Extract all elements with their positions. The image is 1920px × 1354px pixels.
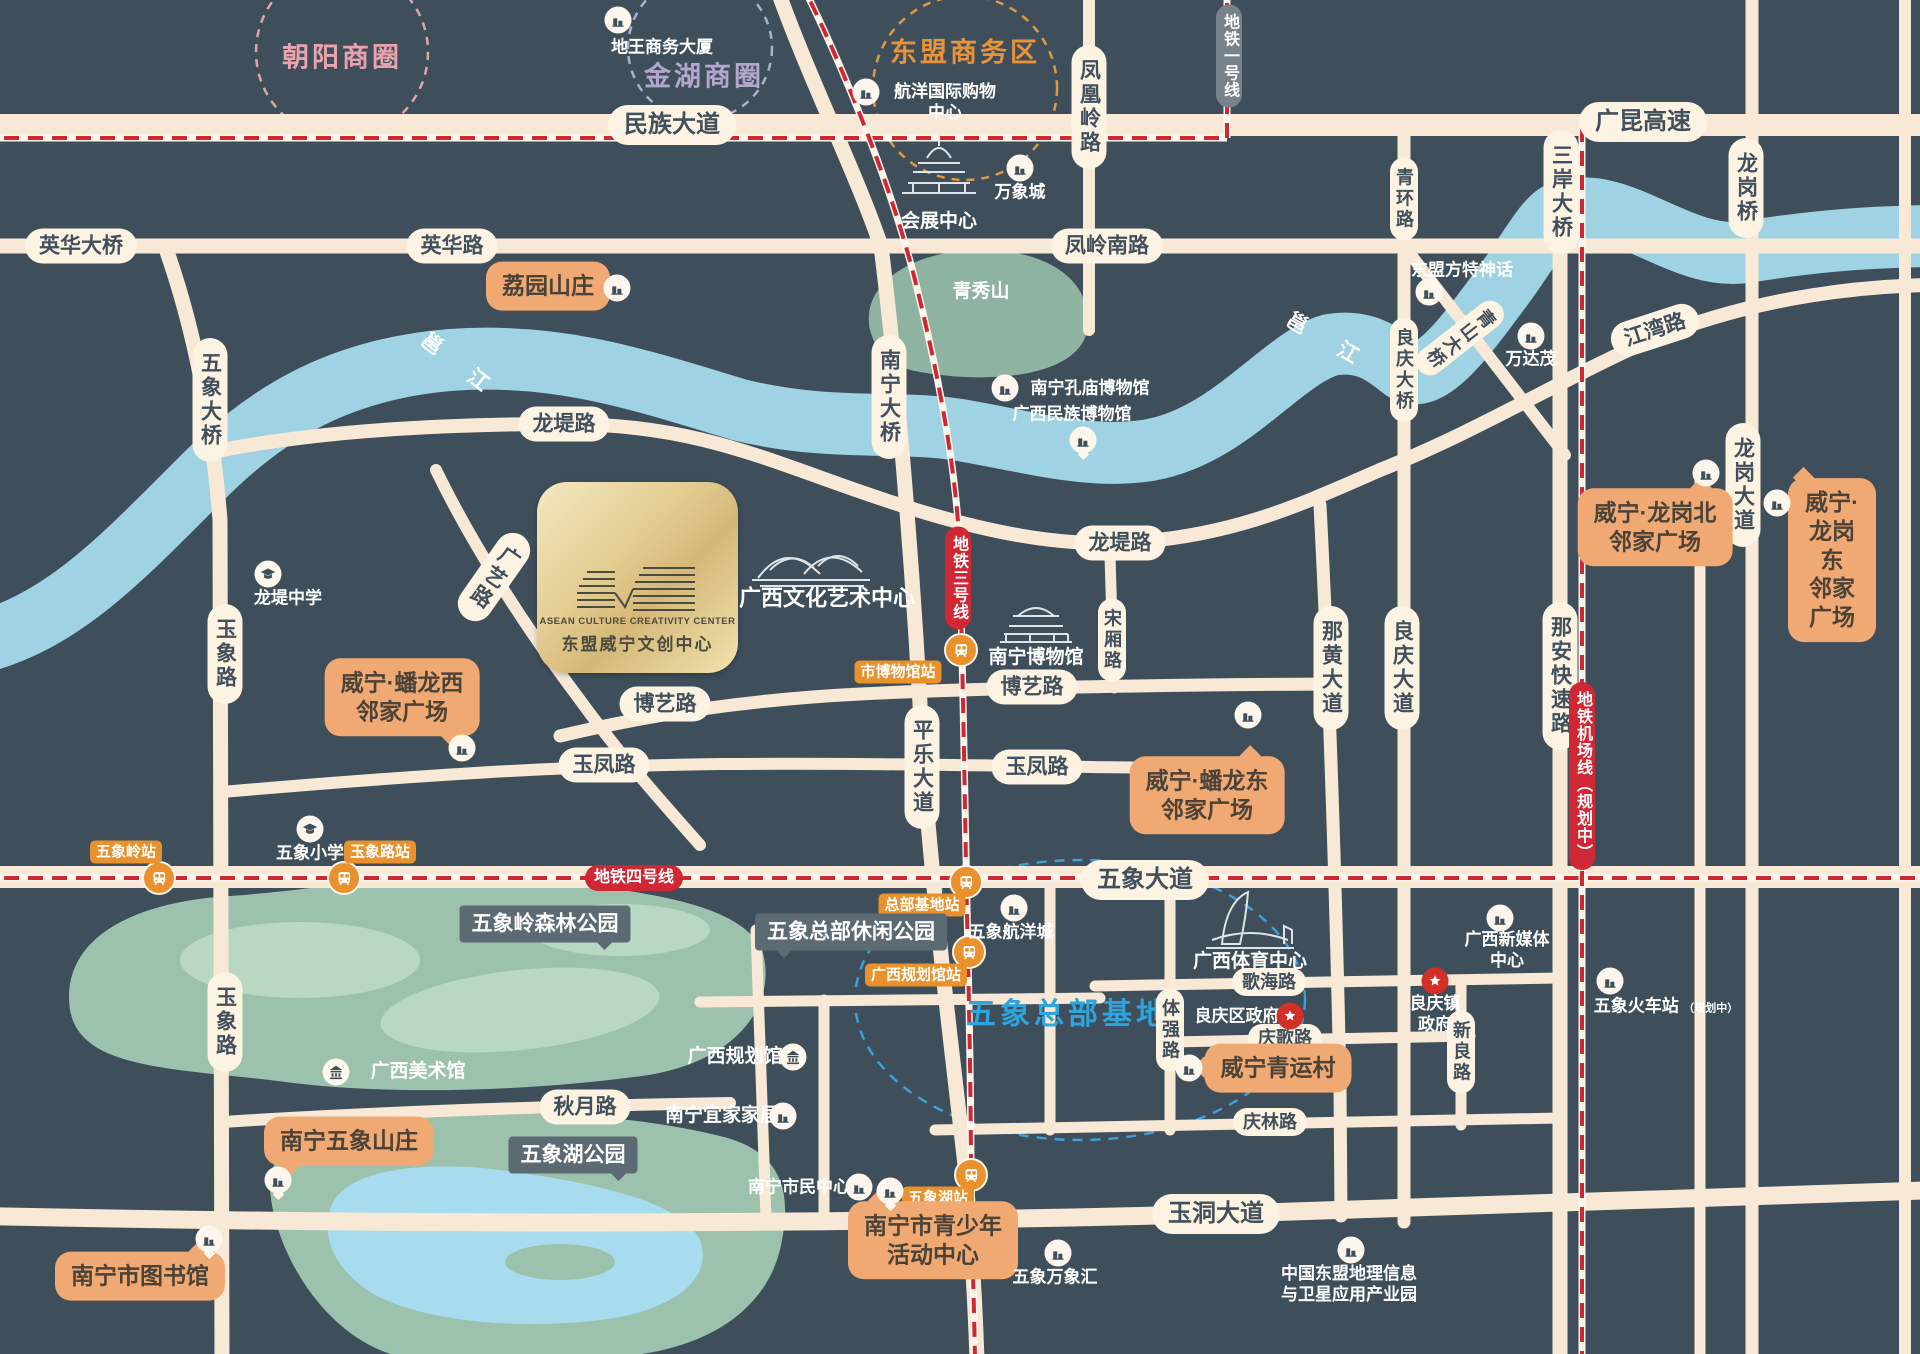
road-pingle-avenue: 平乐大道: [905, 705, 940, 829]
road-liangqing-avenue: 良庆大道: [1385, 606, 1420, 730]
project-card: ASEAN CULTURE CREATIVITY CENTER 东盟威宁文创中心: [537, 482, 738, 673]
poi-qingxiushan: 青秀山: [952, 280, 1009, 304]
qingyun-village-icon: [1176, 1055, 1203, 1082]
rail-station-note: （规划中）: [1683, 1002, 1738, 1014]
poi-wandamao: 万达茂: [1506, 348, 1557, 369]
poi-kongmiao: 南宁孔庙博物馆: [1031, 377, 1150, 398]
poi-wuxiang-school: 五象小学: [276, 842, 344, 863]
road-fengling-south: 凤岭南路: [1051, 229, 1163, 264]
road-yufeng-west: 玉凤路: [559, 748, 650, 783]
poi-fangte: 东盟方特神话: [1411, 259, 1513, 280]
station-planning-hall: 广西规划馆站: [865, 964, 967, 987]
road-guangkun-expressway: 广昆高速: [1579, 102, 1707, 142]
poi-art-center: 广西文化艺术中心: [739, 584, 915, 612]
road-boyi-east: 博艺路: [987, 670, 1078, 705]
label-lake-park: 五象湖公园: [509, 1137, 638, 1174]
rail-station-name: 五象火车站: [1594, 996, 1679, 1015]
road-minzu-avenue: 民族大道: [608, 105, 736, 145]
road-longdi-west: 龙堤路: [519, 407, 610, 442]
poi-rail-station: 五象火车站 （规划中）: [1594, 995, 1738, 1016]
ikea-icon: [770, 1103, 797, 1130]
project-name-cn: 东盟威宁文创中心: [562, 630, 714, 655]
label-forest-park: 五象岭森林公园: [460, 906, 631, 943]
wandamao-icon: [1518, 323, 1545, 350]
wanxiang-city-icon: [1007, 155, 1034, 182]
callout-longgang-north: 威宁·龙岗北 邻家广场: [1578, 488, 1733, 566]
fine-arts-icon: [323, 1059, 350, 1086]
road-yuxiang-south: 玉象路: [208, 972, 243, 1072]
poi-hangyang: 航洋国际购物 中心: [894, 81, 996, 124]
longdi-school-icon: [255, 561, 282, 588]
wuxiang-villa-icon: [265, 1167, 292, 1194]
callout-panlong-east: 威宁·蟠龙东 邻家广场: [1130, 756, 1285, 834]
road-nahuang-avenue: 那黄大道: [1314, 606, 1349, 730]
metro-line1-label: 地铁一号线: [1216, 5, 1242, 108]
station-wuxiangling: 五象岭站: [90, 841, 162, 864]
district-chaoyang: 朝阳商圈: [282, 36, 402, 75]
poi-convention-center: 会展中心: [901, 210, 977, 234]
planning-hall-icon: [780, 1044, 807, 1071]
callout-liyuan: 荔园山庄: [486, 262, 610, 311]
poi-wuxiang-hangyang: 五象航洋城: [969, 921, 1054, 942]
panlong-west-icon: [449, 735, 476, 762]
kongmiao-icon: [992, 375, 1019, 402]
metro-line4-label: 地铁四号线: [585, 865, 683, 891]
poi-longdi-school: 龙堤中学: [254, 587, 322, 608]
callout-wuxiang-villa: 南宁五象山庄: [264, 1117, 434, 1166]
road-longdi-east: 龙堤路: [1075, 526, 1166, 561]
metro-line3-label: 地铁三号线: [945, 527, 971, 630]
wuxiang-mixc-icon: [1045, 1240, 1072, 1267]
poi-ikea: 南宁宜家家居: [665, 1104, 779, 1128]
poi-new-media: 广西新媒体 中心: [1465, 929, 1550, 972]
wuxiang-hangyang-icon: [1001, 895, 1028, 922]
district-wuxiang-hq: 五象总部基地: [966, 989, 1170, 1033]
poi-fine-arts: 广西美术馆: [370, 1060, 465, 1084]
station-yuxianglu: 玉象路站: [344, 841, 416, 864]
minzu-museum-icon: [1070, 427, 1097, 454]
poi-minzu-museum: 广西民族博物馆: [1013, 403, 1132, 424]
road-fenghuangling: 凤凰岭路: [1072, 45, 1107, 169]
poi-sports-center: 广西体育中心: [1193, 950, 1307, 974]
poi-diwang: 地王商务大厦: [611, 36, 713, 57]
longgang-north-icon: [1693, 460, 1720, 487]
poi-citizen-center: 南宁市民中心: [748, 1176, 850, 1197]
panlong-east-icon: [1235, 702, 1262, 729]
road-qiuyue: 秋月路: [540, 1090, 631, 1125]
fangte-icon: [1416, 279, 1443, 306]
metro-airport-line-label: 地铁机场线（规划中）: [1569, 682, 1595, 870]
road-qinghuan: 青环路: [1390, 158, 1418, 241]
hangyang-icon: [853, 79, 880, 106]
callout-longgang-east: 威宁·龙岗东 邻家广场: [1788, 478, 1876, 642]
district-asean-biz: 东盟商务区: [890, 31, 1040, 70]
citizen-center-icon: [846, 1174, 873, 1201]
nanning-location-map: ASEAN CULTURE CREATIVITY CENTER 东盟威宁文创中心…: [0, 0, 1920, 1354]
road-wuxiang-avenue: 五象大道: [1081, 860, 1209, 900]
wuxiang-school-icon: [297, 816, 324, 843]
road-qinglin: 庆林路: [1233, 1108, 1307, 1136]
new-media-icon: [1487, 905, 1514, 932]
diwang-icon: [605, 7, 632, 34]
poi-wuxiang-mixc: 五象万象汇: [1013, 1266, 1098, 1287]
lake-island: [505, 1244, 615, 1280]
geo-park-icon: [1338, 1237, 1365, 1264]
project-name-en: ASEAN CULTURE CREATIVITY CENTER: [539, 616, 735, 627]
label-hq-leisure-park: 五象总部休闲公园: [755, 914, 947, 951]
road-liangqing-bridge: 良庆大桥: [1390, 318, 1418, 422]
road-nanning-bridge: 南宁大桥: [872, 335, 907, 459]
road-yuxiang-north: 玉象路: [208, 604, 243, 704]
station-icon-yuxianglu: [327, 861, 361, 895]
station-icon-museum: [944, 633, 978, 667]
liyuan-icon: [604, 275, 631, 302]
road-yudong-avenue: 玉洞大道: [1152, 1194, 1280, 1234]
road-yinghua-bridge: 英华大桥: [25, 229, 137, 264]
poi-wanxiang-city: 万象城: [995, 181, 1046, 202]
callout-panlong-west: 威宁·蟠龙西 邻家广场: [325, 658, 480, 736]
poi-geo-park: 中国东盟地理信息 与卫星应用产业园: [1281, 1263, 1417, 1306]
station-icon-wuxiangling: [142, 861, 176, 895]
road-boyi-west: 博艺路: [620, 687, 711, 722]
road-yufeng-east: 玉凤路: [992, 750, 1083, 785]
district-jinhu: 金湖商圈: [644, 55, 764, 94]
road-wuxiang-bridge: 五象大桥: [193, 338, 228, 462]
project-logo: [573, 564, 703, 616]
liangqing-gov-icon: [1277, 1003, 1304, 1030]
road-longgang-bridge: 龙岗桥: [1729, 138, 1764, 238]
town-gov-icon: [1422, 968, 1449, 995]
youth-center-icon: [877, 1178, 904, 1205]
longgang-east-icon: [1764, 490, 1791, 517]
poi-nanning-museum: 南宁博物馆: [988, 646, 1083, 670]
callout-youth-center: 南宁市青少年 活动中心: [848, 1201, 1018, 1279]
callout-qingyun-village: 威宁青运村: [1205, 1044, 1352, 1093]
station-museum: 市博物馆站: [854, 661, 941, 684]
city-library-icon: [196, 1226, 223, 1253]
poi-planning-hall: 广西规划馆: [687, 1045, 782, 1069]
callout-city-library: 南宁市图书馆: [55, 1252, 225, 1301]
poi-liangqing-gov: 良庆区政府: [1195, 1005, 1280, 1026]
poi-town-gov: 良庆镇 政府: [1410, 993, 1461, 1036]
rail-station-icon: [1597, 968, 1624, 995]
road-songxiang: 宋厢路: [1098, 599, 1126, 682]
road-yinghua: 英华路: [407, 229, 498, 264]
road-sanan-bridge: 三岸大桥: [1544, 130, 1579, 254]
